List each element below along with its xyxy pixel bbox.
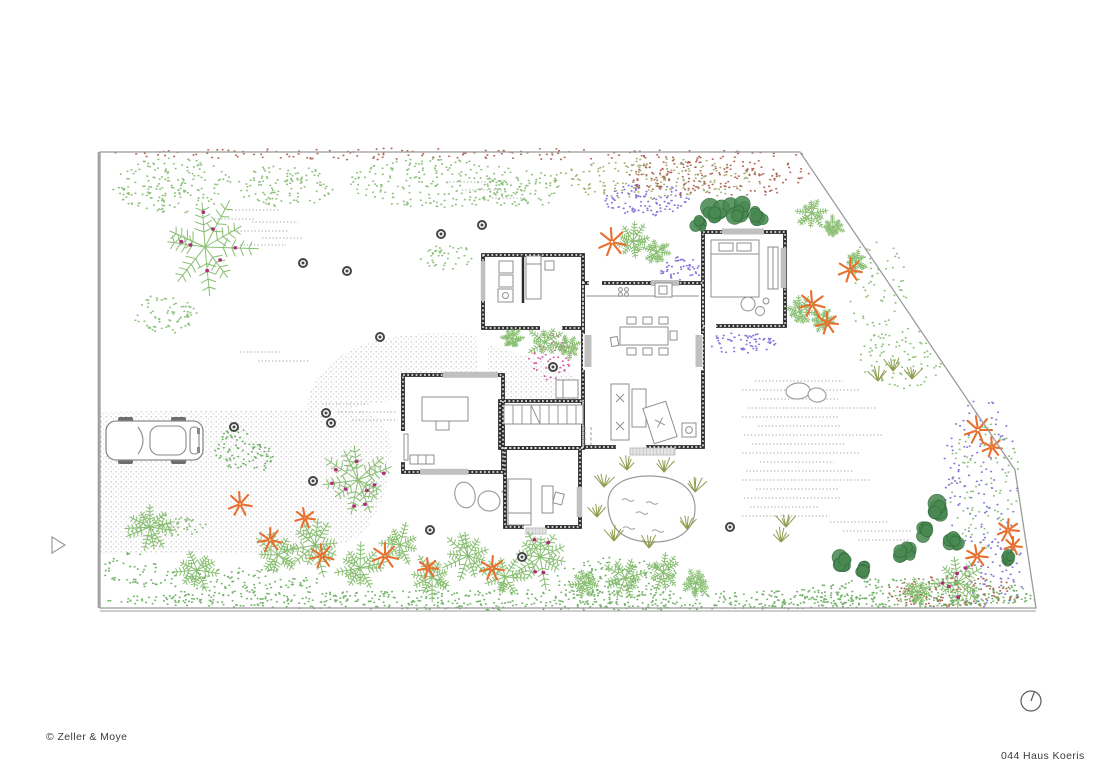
title-block: 044 Haus Koeris Floor Plan 1:125	[1001, 722, 1085, 778]
copyright-note: © Zeller & Moye	[46, 731, 127, 743]
floor-plan-canvas	[0, 0, 1100, 778]
car	[106, 417, 203, 464]
entrance-arrow-icon	[52, 537, 65, 553]
project-title: 044 Haus Koeris	[1001, 750, 1085, 764]
north-arrow-icon	[1021, 691, 1041, 711]
floor-plan-sheet: © Zeller & Moye 044 Haus Koeris Floor Pl…	[0, 0, 1100, 778]
